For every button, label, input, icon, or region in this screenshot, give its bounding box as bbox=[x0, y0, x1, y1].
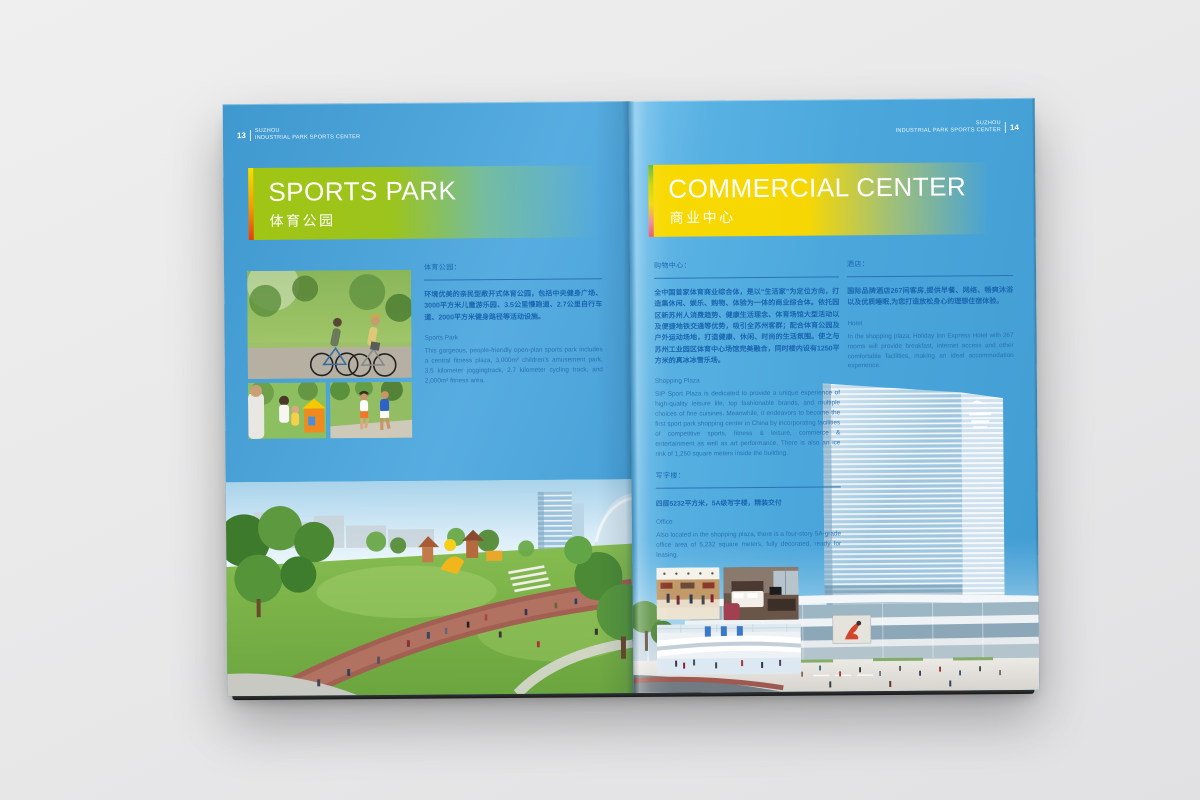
commercial-center-banner: COMMERCIAL CENTER 商业中心 bbox=[648, 162, 1029, 237]
photo-hotel-room bbox=[723, 566, 798, 620]
header-divider bbox=[1005, 122, 1006, 133]
section-label: 体育公园： bbox=[424, 261, 602, 272]
section-label: 写字楼： bbox=[656, 469, 841, 480]
sports-park-cn-text: 环境优美的亲民型敞开式体育公园，包括中央健身广场、3000平方米儿童游乐园、3.… bbox=[424, 288, 602, 323]
section-rule bbox=[656, 486, 841, 488]
running-head-left: 13 SUZHOU INDUSTRIAL PARK SPORTS CENTER bbox=[237, 127, 360, 142]
banner-accent-strip bbox=[248, 168, 254, 240]
hotel-en-text: In the shopping plaza, Holiday Inn Expre… bbox=[847, 331, 1013, 372]
banner-accent-strip bbox=[648, 165, 654, 237]
studio-background: 13 SUZHOU INDUSTRIAL PARK SPORTS CENTER … bbox=[0, 0, 1200, 800]
section-rule bbox=[654, 276, 839, 278]
section-rule bbox=[424, 278, 602, 280]
office-subsection: 写字楼： 四层5232平方米，5A级写字楼，精装交付 Office Also l… bbox=[656, 469, 842, 560]
office-cn-text: 四层5232平方米，5A级写字楼，精装交付 bbox=[656, 496, 841, 507]
header-divider bbox=[250, 130, 251, 141]
running-head-right: SUZHOU INDUSTRIAL PARK SPORTS CENTER 14 bbox=[895, 120, 1018, 135]
shopping-plaza-cn-text: 全中国首家体育商业综合体，是以“生活家”为定位方向，打造集休闲、娱乐、购物、体验… bbox=[654, 286, 840, 367]
section-label: 购物中心： bbox=[654, 259, 839, 270]
office-en-title: Office bbox=[656, 517, 841, 525]
page-number: 13 bbox=[237, 131, 246, 140]
page-number: 14 bbox=[1010, 123, 1019, 132]
photo-mall-interior bbox=[656, 567, 719, 619]
photo-atrium-ice-rink bbox=[657, 623, 801, 674]
page-left: 13 SUZHOU INDUSTRIAL PARK SPORTS CENTER … bbox=[223, 101, 634, 696]
banner-subtitle: 体育公园 bbox=[270, 208, 630, 231]
brand-line1: SUZHOU bbox=[976, 120, 1001, 126]
photo-cycling-couple bbox=[247, 270, 412, 379]
photo-family-playing bbox=[248, 382, 326, 439]
sports-park-en-text: This gorgeous, people-friendly open-plan… bbox=[425, 345, 603, 386]
shopping-plaza-en-title: Shopping Plaza bbox=[655, 377, 840, 385]
shopping-plaza-column: 购物中心： 全中国首家体育商业综合体，是以“生活家”为定位方向，打造集休闲、娱乐… bbox=[654, 259, 842, 674]
hotel-en-title: Hotel bbox=[847, 319, 1013, 327]
banner-title: COMMERCIAL CENTER bbox=[668, 171, 1028, 205]
hotel-cn-text: 国际品牌酒店267间客房,提供早餐、网络、畅爽沐浴以及优质睡眠,为您打造放松身心… bbox=[847, 285, 1013, 309]
hotel-column: 酒店： 国际品牌酒店267间客房,提供早餐、网络、畅爽沐浴以及优质睡眠,为您打造… bbox=[847, 258, 1014, 372]
header-text: SUZHOU INDUSTRIAL PARK SPORTS CENTER bbox=[255, 127, 361, 142]
photo-jogging-couple bbox=[330, 382, 412, 439]
brand-line1: SUZHOU bbox=[255, 128, 280, 134]
brand-line2: INDUSTRIAL PARK SPORTS CENTER bbox=[896, 127, 1002, 134]
section-rule bbox=[847, 275, 1013, 277]
shopping-plaza-en-text: SIP Sport Plaza is dedicated to provide … bbox=[655, 389, 841, 460]
section-label: 酒店： bbox=[847, 258, 1013, 269]
brochure-spread: 13 SUZHOU INDUSTRIAL PARK SPORTS CENTER … bbox=[223, 98, 1040, 696]
photo-collage bbox=[247, 270, 414, 439]
sports-park-en-title: Sports Park bbox=[425, 333, 603, 341]
sports-park-textblock: 体育公园： 环境优美的亲民型敞开式体育公园，包括中央健身广场、3000平方米儿童… bbox=[424, 261, 603, 386]
brand-line2: INDUSTRIAL PARK SPORTS CENTER bbox=[255, 134, 361, 141]
sports-park-banner: SPORTS PARK 体育公园 bbox=[248, 165, 630, 240]
header-text: SUZHOU INDUSTRIAL PARK SPORTS CENTER bbox=[895, 120, 1001, 135]
photo-sports-park-rendering bbox=[226, 479, 634, 696]
banner-subtitle: 商业中心 bbox=[670, 205, 1029, 228]
office-en-text: Also located in the shopping plaza, ther… bbox=[656, 529, 841, 560]
page-right: SUZHOU INDUSTRIAL PARK SPORTS CENTER 14 … bbox=[629, 98, 1040, 693]
interior-photo-row bbox=[656, 566, 841, 620]
banner-title: SPORTS PARK bbox=[268, 174, 629, 208]
